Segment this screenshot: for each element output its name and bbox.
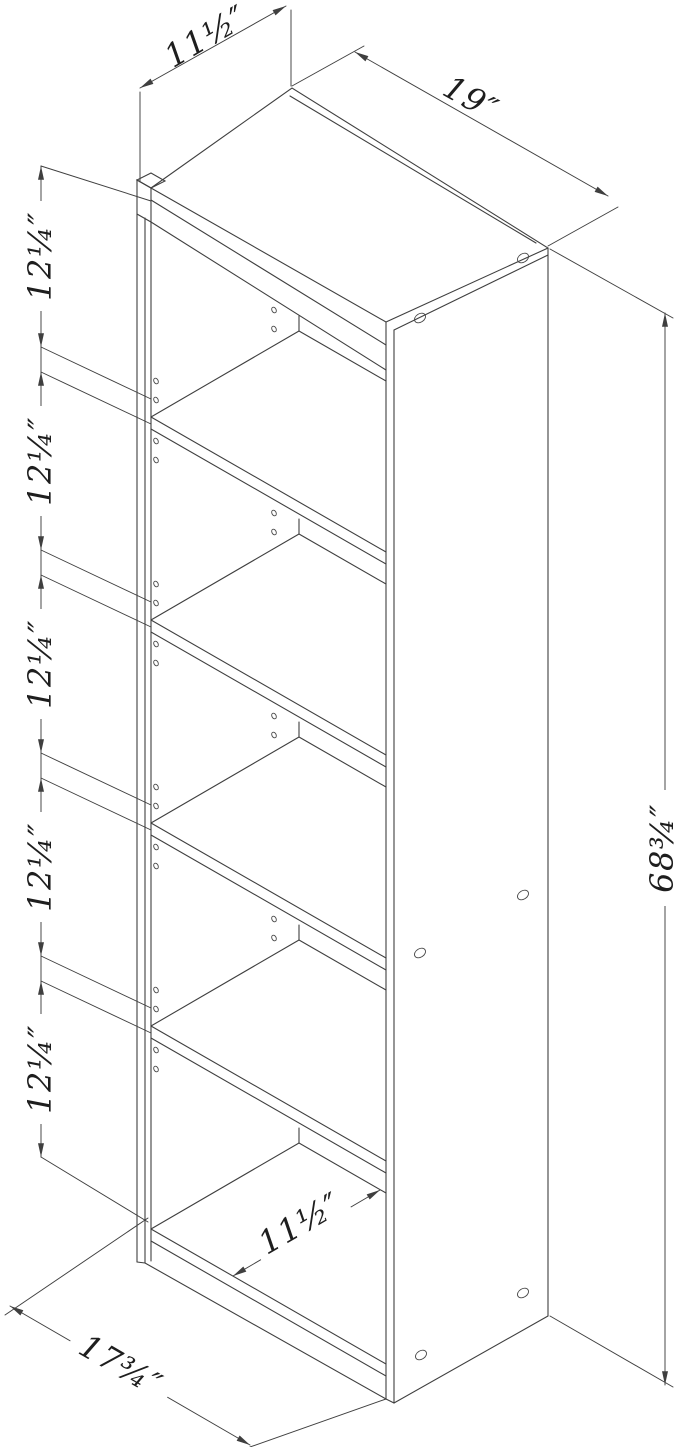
dimension-interior-depth: 11½″ (233, 1176, 380, 1276)
diagram-svg: 11½″ 19″ 68¾″ (0, 0, 679, 1447)
dim-overall-height-label: 68¾″ (643, 803, 679, 893)
shelf-pin-holes (153, 306, 278, 1072)
dimension-overall-height: 68¾″ (550, 249, 679, 1387)
shelf-3 (151, 722, 386, 970)
dimension-top-width: 19″ (292, 46, 618, 246)
bookcase-dimension-diagram: 11½″ 19″ 68¾″ (0, 0, 679, 1447)
right-panel (386, 249, 548, 1403)
shelf-1 (151, 316, 386, 564)
dimension-top-depth: 11½″ (140, 0, 291, 182)
dim-shelf-spacing-label-2: 12¼″ (21, 416, 59, 506)
dimension-shelf-spacing-chain: 12¼″ 12¼″ 12¼″ 12¼″ 12¼″ (13, 166, 151, 1222)
dim-shelf-spacing-label-4: 12¼″ (21, 822, 59, 912)
shelf-4 (151, 925, 386, 1173)
cam-holes (413, 251, 531, 1362)
dim-shelf-spacing-label-1: 12¼″ (21, 211, 59, 301)
dim-top-width-label: 19″ (437, 68, 505, 129)
dim-shelf-spacing-label-5: 12¼″ (21, 1024, 59, 1114)
dimension-base-width: 17¾″ (5, 1218, 386, 1447)
shelf-2 (151, 519, 386, 767)
top-panel (137, 88, 548, 370)
dim-top-depth-label: 11½″ (158, 0, 255, 75)
dim-shelf-spacing-label-3: 12¼″ (21, 619, 59, 709)
